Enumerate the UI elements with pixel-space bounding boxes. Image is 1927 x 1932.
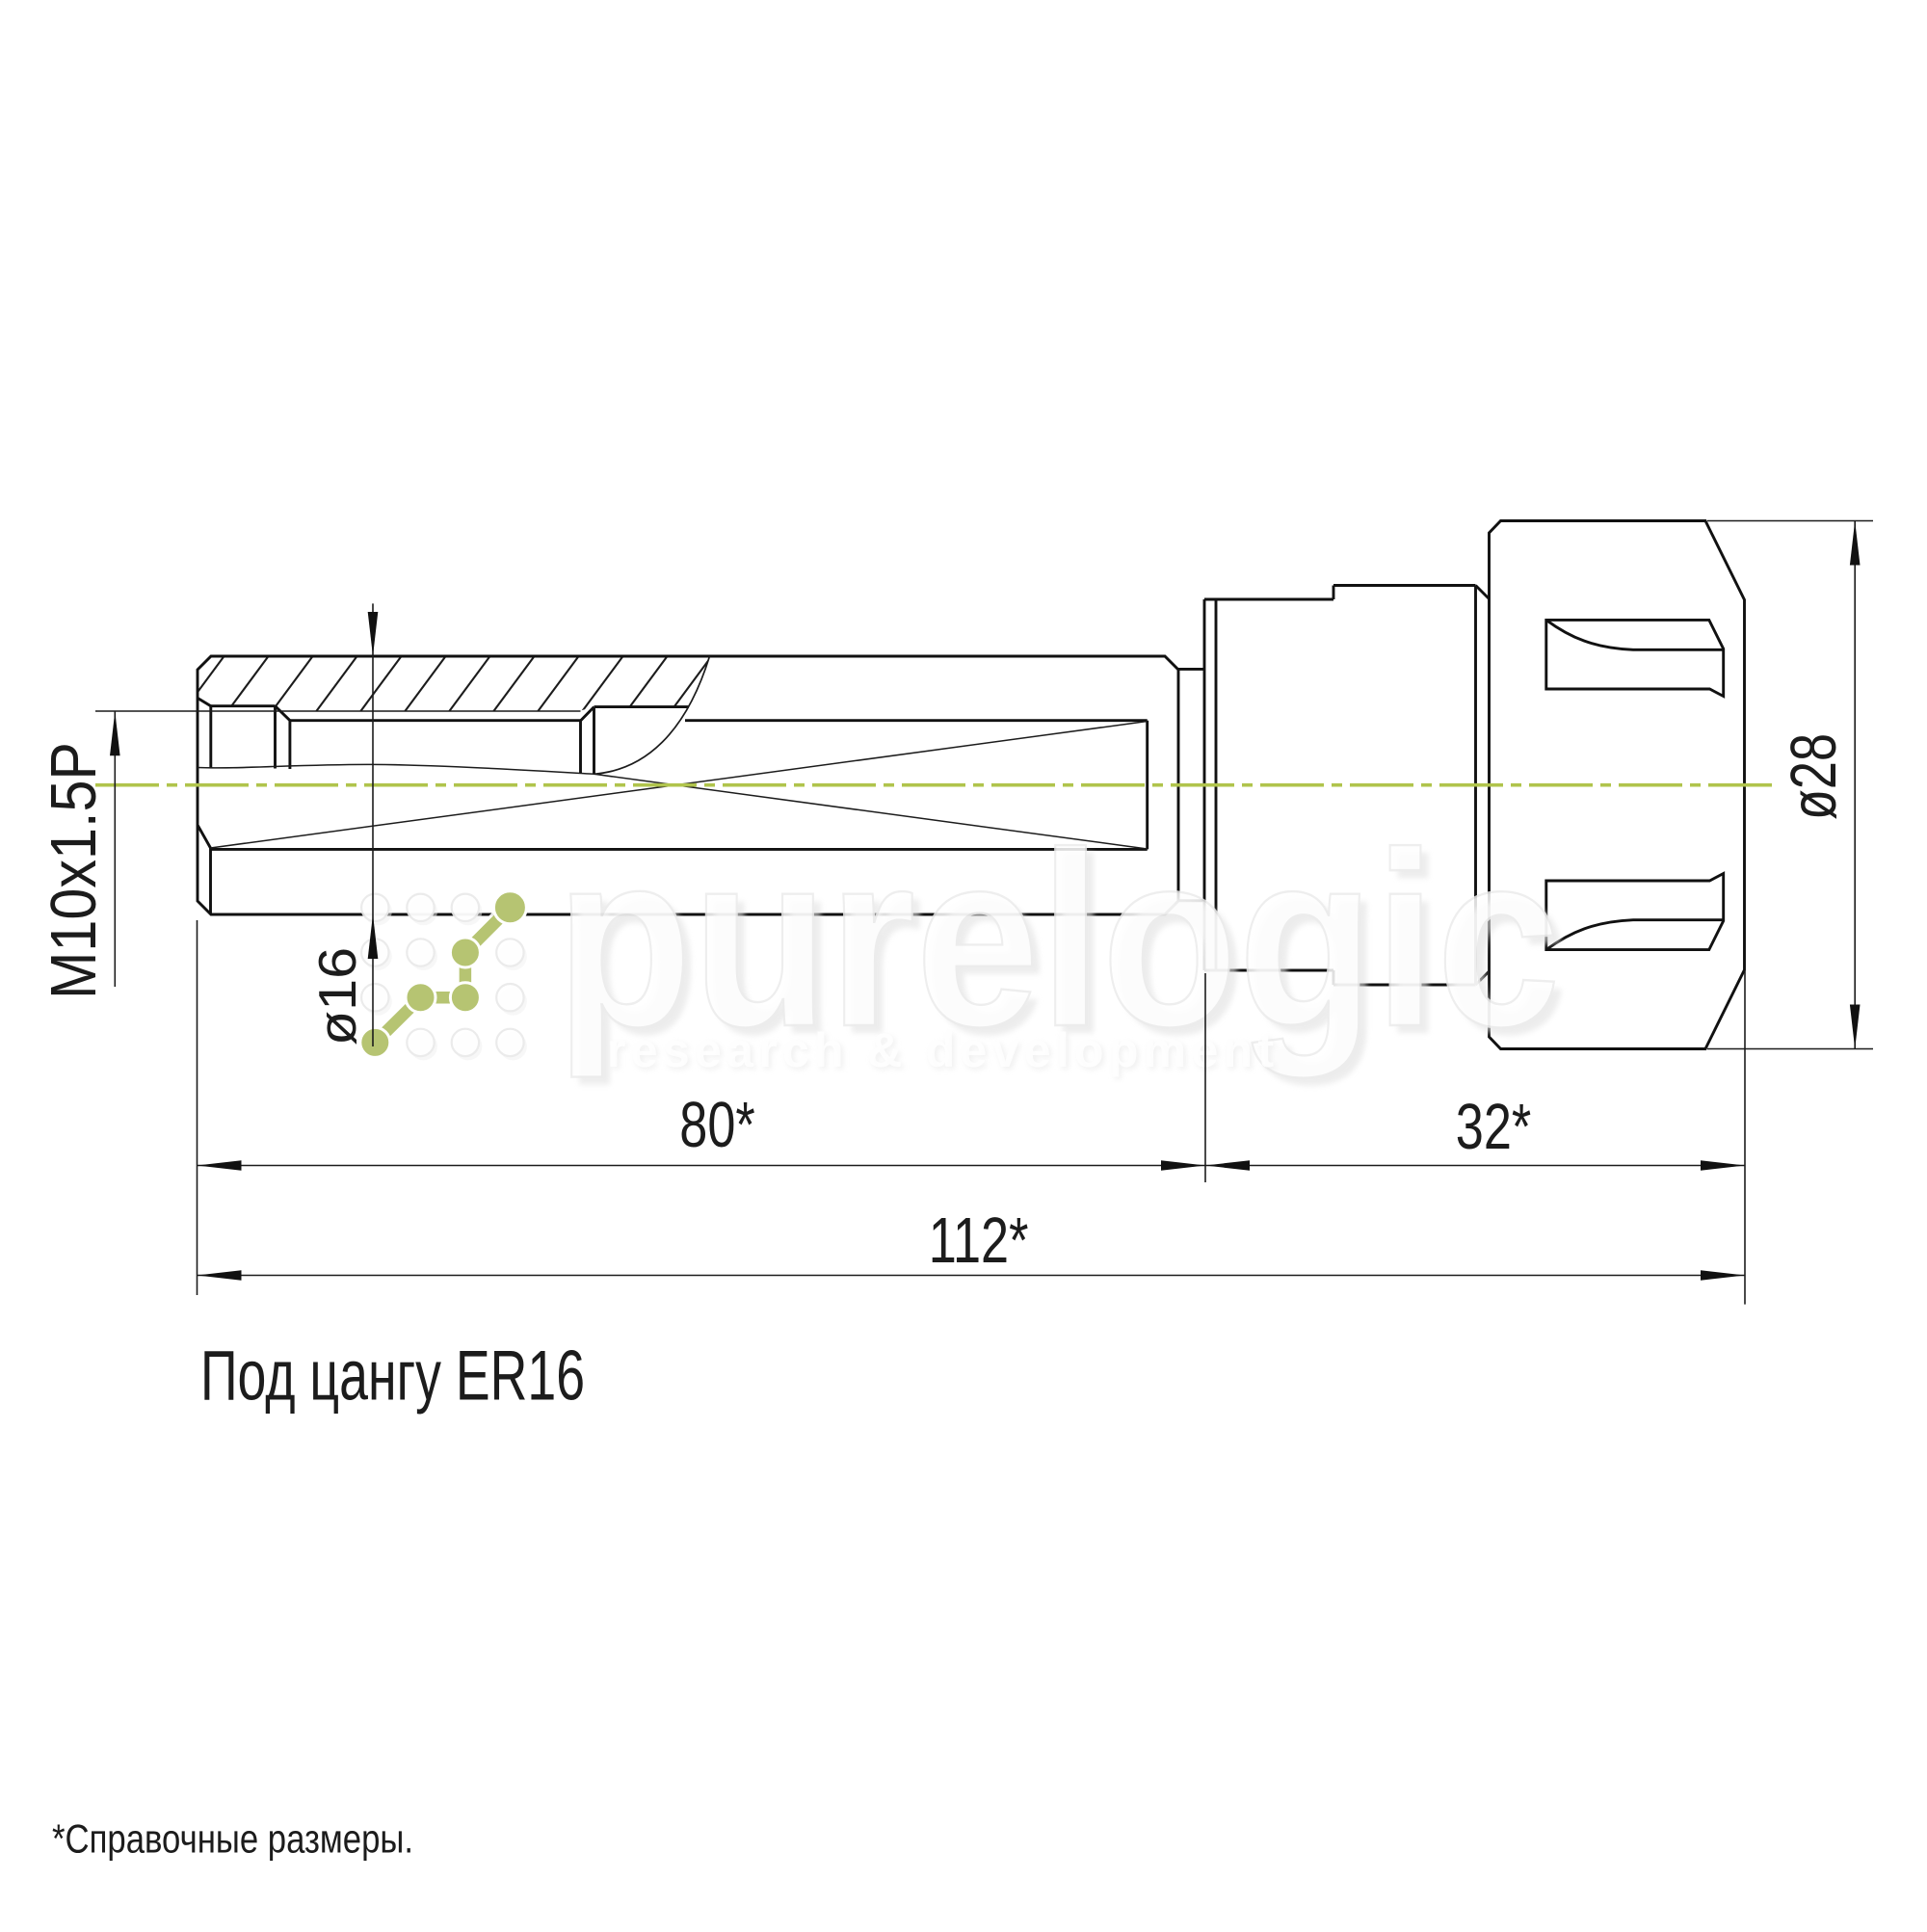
svg-text:ø16: ø16: [308, 947, 367, 1045]
svg-text:32*: 32*: [1456, 1091, 1531, 1163]
svg-text:M10x1.5P: M10x1.5P: [39, 742, 110, 999]
svg-text:112*: 112*: [929, 1204, 1029, 1277]
svg-text:Под цангу ER16: Под цангу ER16: [200, 1337, 585, 1416]
svg-text:*Справочные размеры.: *Справочные размеры.: [52, 1817, 413, 1863]
svg-text:80*: 80*: [679, 1089, 754, 1161]
svg-text:research & development: research & development: [607, 1023, 1279, 1077]
svg-text:ø28: ø28: [1778, 733, 1850, 820]
